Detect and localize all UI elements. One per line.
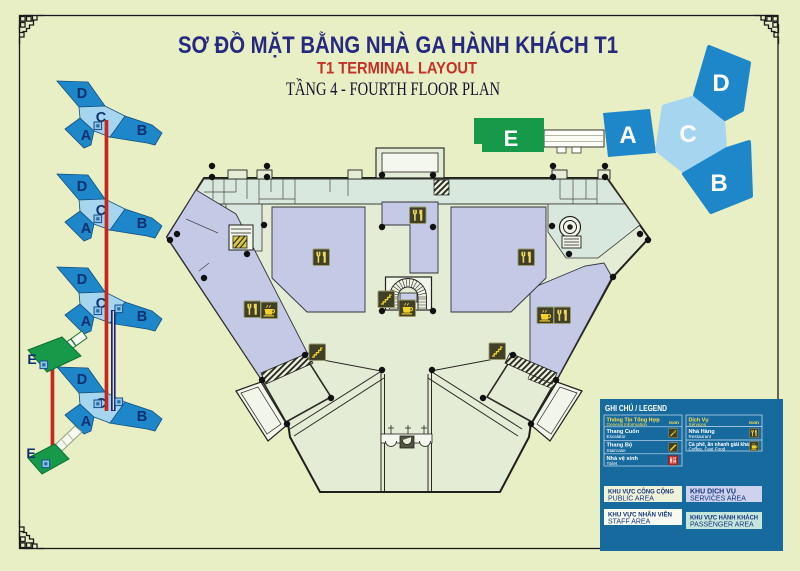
svg-text:D: D [712, 70, 729, 97]
svg-text:B: B [710, 170, 727, 197]
svg-text:General Information: General Information [607, 422, 648, 427]
svg-text:Restaurant: Restaurant [689, 434, 712, 439]
svg-text:Coffee, Fast Food: Coffee, Fast Food [689, 447, 726, 452]
svg-text:C: C [679, 121, 696, 148]
svg-text:Staircase: Staircase [607, 448, 627, 453]
svg-text:PASSENGER AREA: PASSENGER AREA [690, 522, 754, 529]
svg-text:Toilet: Toilet [607, 461, 618, 466]
svg-text:E: E [26, 445, 35, 461]
svg-text:E: E [27, 351, 36, 367]
svg-text:SƠ ĐỒ MẶT BẰNG NHÀ GA HÀNH KHÁ: SƠ ĐỒ MẶT BẰNG NHÀ GA HÀNH KHÁCH T1 [178, 31, 618, 59]
svg-text:Escalator: Escalator [607, 434, 627, 439]
svg-text:STAFF AREA: STAFF AREA [608, 519, 651, 526]
svg-text:A: A [81, 128, 92, 144]
svg-text:SERVICES AREA: SERVICES AREA [690, 496, 746, 503]
svg-text:KHU VỰC CÔNG CỘNG: KHU VỰC CÔNG CỘNG [608, 487, 674, 496]
svg-text:KHU DỊCH VỤ: KHU DỊCH VỤ [690, 489, 736, 496]
svg-text:KHU VỰC NHÂN VIÊN: KHU VỰC NHÂN VIÊN [608, 510, 672, 519]
svg-text:E: E [504, 126, 519, 151]
svg-text:D: D [77, 86, 87, 102]
svg-text:Icon: Icon [749, 420, 759, 426]
svg-text:Services: Services [689, 422, 707, 427]
svg-text:A: A [619, 122, 636, 149]
svg-text:Icon: Icon [669, 420, 679, 426]
svg-text:T1 TERMINAL LAYOUT: T1 TERMINAL LAYOUT [317, 59, 478, 78]
svg-text:PUBLIC AREA: PUBLIC AREA [608, 496, 654, 503]
svg-text:KHU VỰC HÀNH KHÁCH: KHU VỰC HÀNH KHÁCH [690, 513, 758, 522]
svg-text:GHI CHÚ / LEGEND: GHI CHÚ / LEGEND [605, 404, 667, 413]
svg-text:TẦNG 4 - FOURTH FLOOR PLAN: TẦNG 4 - FOURTH FLOOR PLAN [286, 78, 500, 100]
svg-text:B: B [137, 123, 147, 139]
